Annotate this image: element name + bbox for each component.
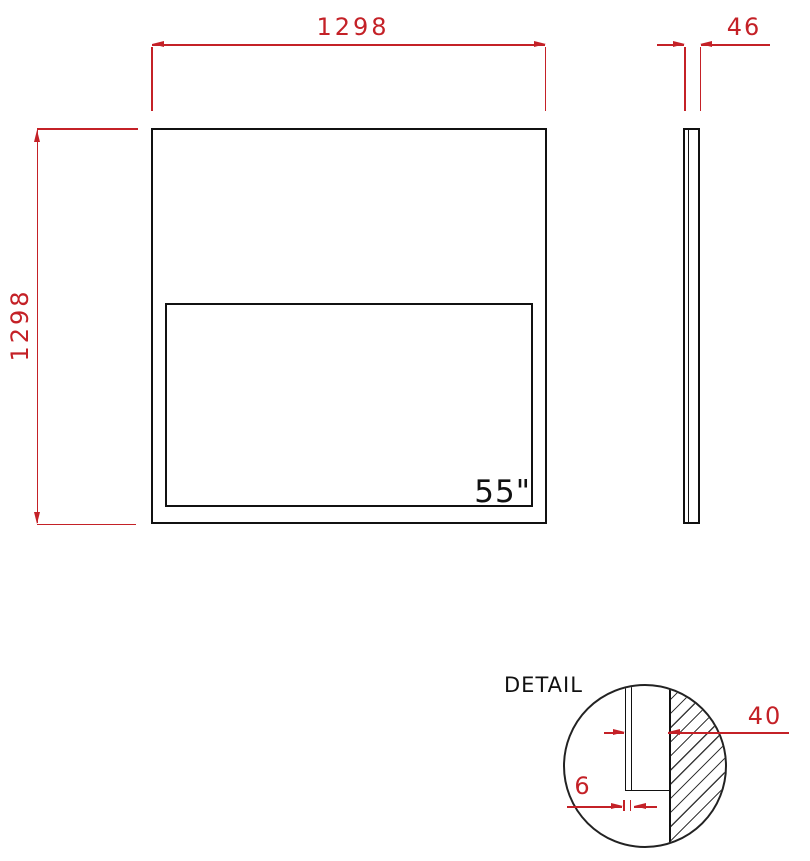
- glass-dim-arrow-left-icon: [611, 803, 623, 809]
- thickness-dim-extension-left: [684, 47, 686, 111]
- width-dim-extension-left: [151, 47, 153, 111]
- height-dim-extension-bottom: [37, 524, 136, 526]
- glass-dim-extension-left: [623, 800, 625, 811]
- side-view-outline: [683, 128, 700, 524]
- thickness-dim-arrow-left-icon: [673, 41, 685, 47]
- detail-slot-bottom-line: [625, 790, 672, 792]
- detail-glass-outer-line: [625, 686, 627, 791]
- detail-title: DETAIL: [504, 675, 583, 696]
- technical-drawing: 55" 1298 1298 46 DETAIL 40 6: [0, 0, 810, 861]
- height-dim-arrow-bottom-icon: [34, 512, 40, 524]
- height-dim-arrow-top-icon: [34, 130, 40, 142]
- detail-glass-inner-line: [631, 686, 633, 791]
- width-dim-arrow-right-icon: [534, 41, 546, 47]
- depth-dim-arrow-right-icon: [668, 729, 680, 735]
- depth-dim-line-right: [668, 732, 789, 734]
- thickness-dim-arrow-right-icon: [700, 41, 712, 47]
- thickness-dim-extension-right: [700, 47, 702, 111]
- detail-circle: [563, 684, 727, 848]
- thickness-dim-label: 46: [713, 15, 775, 39]
- width-dim-extension-right: [545, 47, 547, 111]
- glass-dim-arrow-right-icon: [634, 803, 646, 809]
- side-view-glass-line: [688, 130, 690, 522]
- height-dim-label: 1298: [8, 260, 32, 390]
- glass-dim-label: 6: [563, 774, 603, 798]
- height-dim-extension-top: [37, 128, 138, 130]
- height-dim-line: [37, 130, 39, 523]
- detail-hatch-section: [669, 684, 727, 848]
- glass-dim-extension-right: [630, 800, 632, 811]
- depth-dim-label: 40: [735, 704, 795, 728]
- depth-dim-arrow-left-icon: [613, 729, 625, 735]
- width-dim-line: [152, 44, 545, 46]
- width-dim-label: 1298: [288, 15, 418, 39]
- screen-size-label: 55": [403, 477, 531, 508]
- width-dim-arrow-left-icon: [152, 41, 164, 47]
